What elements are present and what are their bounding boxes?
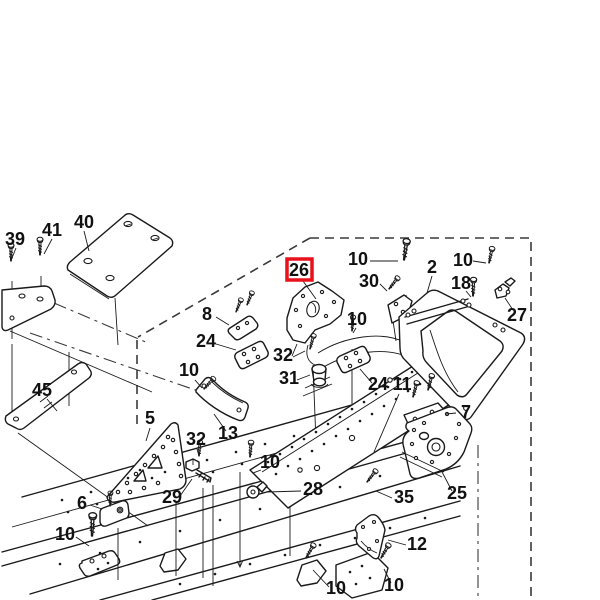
callout-24-a[interactable]: 24	[196, 331, 216, 351]
callout-13[interactable]: 13	[218, 423, 238, 443]
callout-10-h[interactable]: 10	[384, 575, 404, 595]
part-27-clamp	[495, 278, 515, 298]
part-12-bracket	[356, 515, 386, 559]
callout-10-g[interactable]: 10	[326, 578, 346, 598]
callout-7[interactable]: 7	[461, 402, 471, 422]
part-13-bracket	[196, 378, 248, 421]
callout-18[interactable]: 18	[451, 273, 471, 293]
part-30-screw	[387, 275, 401, 291]
callout-27[interactable]: 27	[507, 305, 527, 325]
callout-11[interactable]: 11	[392, 374, 411, 394]
part-10-screw-b	[486, 246, 495, 264]
callout-10-c[interactable]: 10	[179, 360, 199, 380]
part-8-screws	[228, 290, 258, 340]
part-31-bushing	[311, 365, 328, 388]
diagram-canvas: 39 41 40 26 10 30 2 10 18 27 8 24 32 31 …	[0, 0, 600, 600]
part-26-bracket	[287, 282, 344, 365]
parts-diagram-page: 39 41 40 26 10 30 2 10 18 27 8 24 32 31 …	[0, 0, 600, 600]
callout-35[interactable]: 35	[394, 487, 414, 507]
callout-32-a[interactable]: 32	[273, 345, 293, 365]
callout-10-d[interactable]: 10	[347, 309, 367, 329]
callout-28[interactable]: 28	[303, 479, 323, 499]
part-24-plate-lower	[337, 346, 370, 372]
callout-10-e[interactable]: 10	[55, 524, 75, 544]
callout-10-b[interactable]: 10	[453, 250, 473, 270]
callout-45[interactable]: 45	[32, 380, 52, 400]
callout-10-f[interactable]: 10	[260, 452, 280, 472]
callout-12[interactable]: 12	[407, 534, 427, 554]
callout-30[interactable]: 30	[359, 271, 379, 291]
mount-plate-left	[2, 286, 55, 331]
callout-29[interactable]: 29	[162, 487, 182, 507]
callout-39[interactable]: 39	[5, 229, 25, 249]
callout-40[interactable]: 40	[74, 212, 94, 232]
callout-2[interactable]: 2	[427, 257, 437, 277]
callout-25[interactable]: 25	[447, 483, 467, 503]
callout-8[interactable]: 8	[202, 304, 212, 324]
part-24-plate-upper	[235, 341, 268, 368]
part-10-screw-a	[400, 238, 410, 260]
callout-31[interactable]: 31	[279, 368, 299, 388]
callout-6[interactable]: 6	[77, 493, 87, 513]
callout-5[interactable]: 5	[145, 408, 155, 428]
callout-32-b[interactable]: 32	[186, 429, 206, 449]
callout-24-b[interactable]: 24	[368, 374, 388, 394]
callout-10-a[interactable]: 10	[348, 249, 368, 269]
callout-26-selected[interactable]: 26	[289, 260, 309, 280]
callout-41[interactable]: 41	[42, 220, 62, 240]
